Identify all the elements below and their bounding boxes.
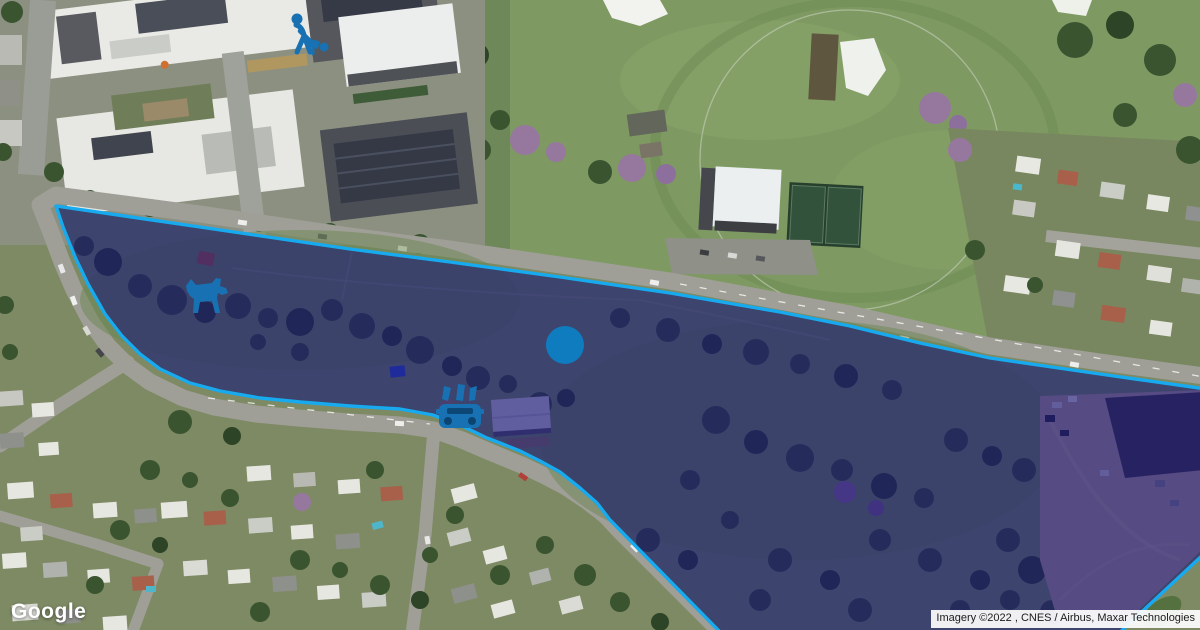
- map-canvas[interactable]: Google Imagery ©2022 , CNES / Airbus, Ma…: [0, 0, 1200, 630]
- location-dot-marker[interactable]: [546, 326, 584, 364]
- imagery-attribution: Imagery ©2022 , CNES / Airbus, Maxar Tec…: [931, 610, 1200, 628]
- satellite-map[interactable]: [0, 0, 1200, 630]
- google-logo[interactable]: Google: [11, 600, 86, 624]
